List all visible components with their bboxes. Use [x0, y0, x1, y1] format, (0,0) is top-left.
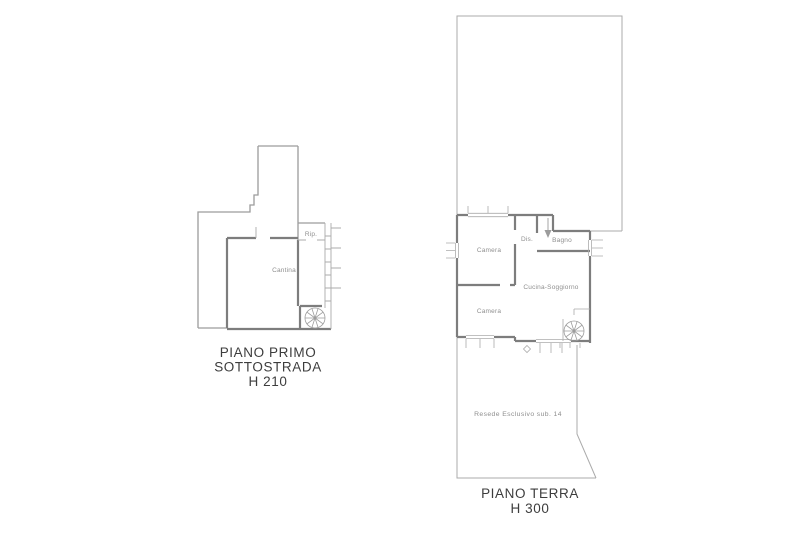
right-window-wall — [325, 223, 331, 329]
room-label-camera-top: Camera — [477, 247, 502, 254]
floor-plan-piano-terra: Camera Dis. Bagno Cucina-Soggiorno Camer… — [446, 16, 622, 516]
blueprint-page: Rip. Cantina PIANO PRIMO SOTTOSTRADA H 2… — [0, 0, 800, 533]
resede-outline — [457, 337, 596, 478]
room-label-dis: Dis. — [521, 236, 533, 243]
apartment-outer-walls — [457, 215, 590, 343]
left-plan-title-line3: H 210 — [248, 374, 287, 389]
window-top-wall — [468, 206, 508, 217]
spiral-staircase-left — [305, 308, 325, 328]
room-label-bagno: Bagno — [552, 237, 572, 244]
french-window-cucina — [536, 340, 571, 353]
cantina-walls — [227, 238, 331, 329]
outdoor-area-label: Resede Esclusivo sub. 14 — [474, 411, 562, 418]
spiral-staircase-right — [564, 321, 584, 341]
right-plan-title: PIANO TERRA H 300 — [481, 486, 579, 516]
window-left-wall — [446, 243, 458, 258]
window-right-wall — [589, 240, 603, 256]
room-label-camera-bottom: Camera — [477, 308, 502, 315]
window-bottom-camera — [466, 336, 494, 348]
right-plan-title-line1: PIANO TERRA — [481, 486, 579, 501]
floor-plan-piano-primo: Rip. Cantina PIANO PRIMO SOTTOSTRADA H 2… — [198, 146, 341, 389]
left-plan-title: PIANO PRIMO SOTTOSTRADA H 210 — [214, 345, 322, 389]
room-label-cantina: Cantina — [272, 267, 296, 274]
window-outer-ticks — [331, 228, 341, 288]
room-label-rip: Rip. — [305, 231, 317, 238]
entrance-arrow-head — [545, 230, 552, 238]
apartment-walls — [457, 215, 590, 343]
floor-plan-drawing: Rip. Cantina PIANO PRIMO SOTTOSTRADA H 2… — [0, 0, 800, 533]
threshold-diamond — [524, 346, 531, 353]
left-plan-title-line2: SOTTOSTRADA — [214, 360, 322, 375]
left-plan-interior-walls — [227, 238, 331, 329]
window-hatch-marks — [325, 236, 331, 301]
entrance-arrow — [545, 218, 552, 238]
left-plan-title-line1: PIANO PRIMO — [220, 345, 317, 360]
right-plan-title-line2: H 300 — [510, 501, 549, 516]
room-label-cucina-soggiorno: Cucina-Soggiorno — [523, 284, 578, 291]
courtyard-outline — [457, 16, 622, 231]
